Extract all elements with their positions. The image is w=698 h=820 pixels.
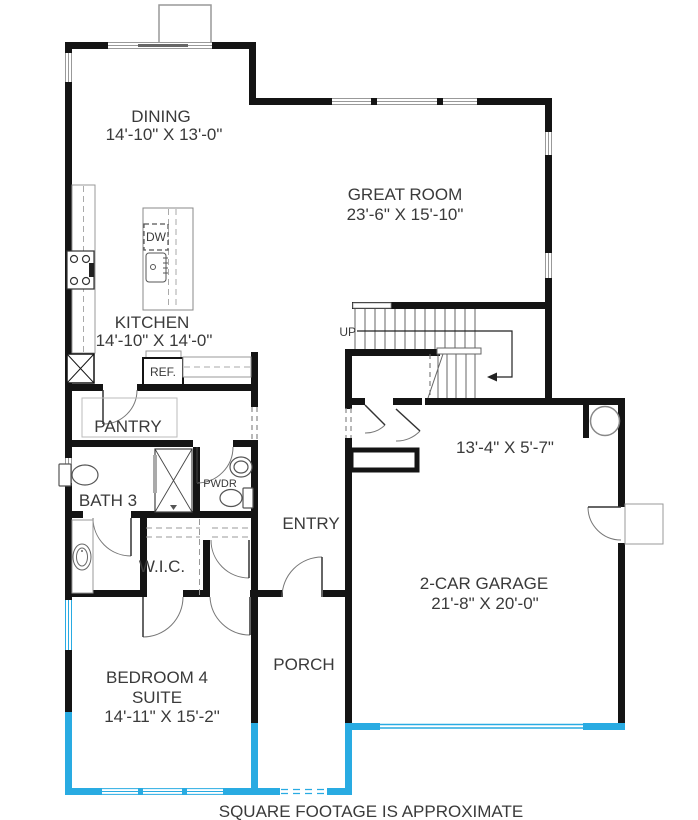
room-label-great-room: GREAT ROOM — [348, 185, 463, 204]
room-label-garage: 2-CAR GARAGE — [420, 574, 548, 593]
ref-cabinet — [146, 351, 181, 358]
room-label-kitchen: KITCHEN — [115, 313, 190, 332]
interior-walls — [65, 349, 625, 723]
fireplace — [159, 5, 211, 43]
refrigerator-label: REF. — [150, 365, 176, 379]
bath3-door — [93, 518, 131, 556]
room-dims-bedroom4: 14'-11" X 15'-2" — [104, 707, 220, 726]
room-label-bath3: BATH 3 — [79, 491, 137, 510]
mud-hall-door-1 — [365, 405, 385, 433]
garage-side-door — [588, 504, 663, 544]
room-dims-kitchen: 14'-10" X 14'-0" — [96, 331, 213, 350]
bath3-toilet-icon — [59, 464, 98, 486]
dishwasher-label: DW — [146, 230, 167, 244]
room-label-entry: ENTRY — [282, 514, 339, 533]
powder-toilet-icon — [220, 488, 253, 508]
room-label-dining: DINING — [131, 107, 191, 126]
floor-plan: DINING 14'-10" X 13'-0" GREAT ROOM 23'-6… — [0, 0, 698, 820]
bath3-vanity-icon — [72, 520, 93, 593]
stairs-up-label: UP — [339, 325, 356, 339]
room-dims-great-room: 23'-6" X 15'-10" — [347, 205, 464, 224]
garage-step — [351, 450, 417, 470]
room-dims-garage: 21'-8" X 20'-0" — [431, 594, 538, 613]
porch-opening — [281, 790, 326, 794]
wic-door — [143, 597, 183, 637]
cabinet-x-icon — [67, 354, 94, 383]
kitchen-sink-icon — [146, 253, 168, 282]
room-label-porch: PORCH — [273, 655, 334, 674]
shower-icon — [153, 449, 192, 512]
room-label-powder: PWDR — [203, 478, 237, 490]
room-label-bedroom4-suite: SUITE — [132, 688, 182, 707]
range-icon — [67, 251, 94, 289]
mud-hall-door-2 — [396, 409, 420, 441]
room-label-wic: W.I.C. — [139, 557, 185, 576]
room-dims-flex: 13'-4" X 5'-7" — [456, 438, 554, 457]
water-heater-icon — [591, 407, 620, 436]
room-label-pantry: PANTRY — [94, 417, 161, 436]
kitchen-fixtures — [67, 185, 251, 437]
powder-sink-icon — [230, 457, 252, 477]
garage-door — [380, 725, 583, 729]
cased-openings — [252, 407, 351, 440]
closet-bedroom-door — [210, 597, 250, 635]
side-stoop — [625, 504, 663, 544]
front-door — [282, 557, 322, 597]
footer-disclaimer: SQUARE FOOTAGE IS APPROXIMATE — [219, 802, 523, 820]
entry-closet-door — [211, 540, 249, 578]
fireplace-unit — [138, 44, 188, 47]
room-dims-dining: 14'-10" X 13'-0" — [106, 125, 223, 144]
floor-plan-drawing: DINING 14'-10" X 13'-0" GREAT ROOM 23'-6… — [0, 0, 698, 820]
room-label-bedroom4: BEDROOM 4 — [106, 668, 208, 687]
